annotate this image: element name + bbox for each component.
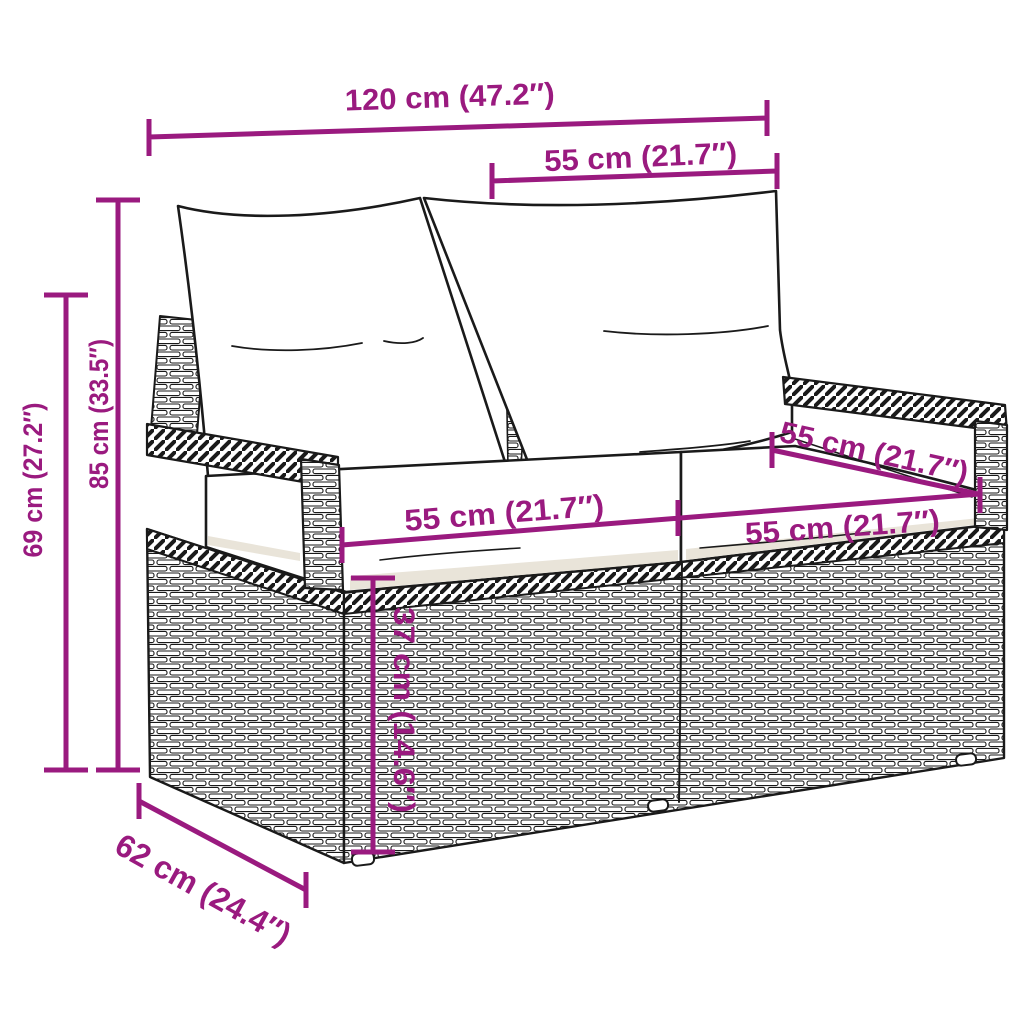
- sofa-dimension-drawing: 120 cm (47.2″) 55 cm (21.7″) 85 cm (33.5…: [0, 0, 1024, 1024]
- dim-armrest-height-label: 69 cm (27.2″): [18, 403, 48, 558]
- dim-armrest-height: [44, 295, 88, 770]
- dimension-diagram: 120 cm (47.2″) 55 cm (21.7″) 85 cm (33.5…: [0, 0, 1024, 1024]
- dim-overall-width-label: 120 cm (47.2″): [344, 77, 555, 117]
- dim-total-height-label: 85 cm (33.5″): [84, 339, 114, 489]
- dim-base-height-label: 37 cm (14.6″): [387, 607, 420, 813]
- dim-overall-depth-label: 62 cm (24.4″): [109, 826, 297, 952]
- left-armrest-post: [301, 459, 343, 590]
- right-armrest-post: [975, 421, 1007, 530]
